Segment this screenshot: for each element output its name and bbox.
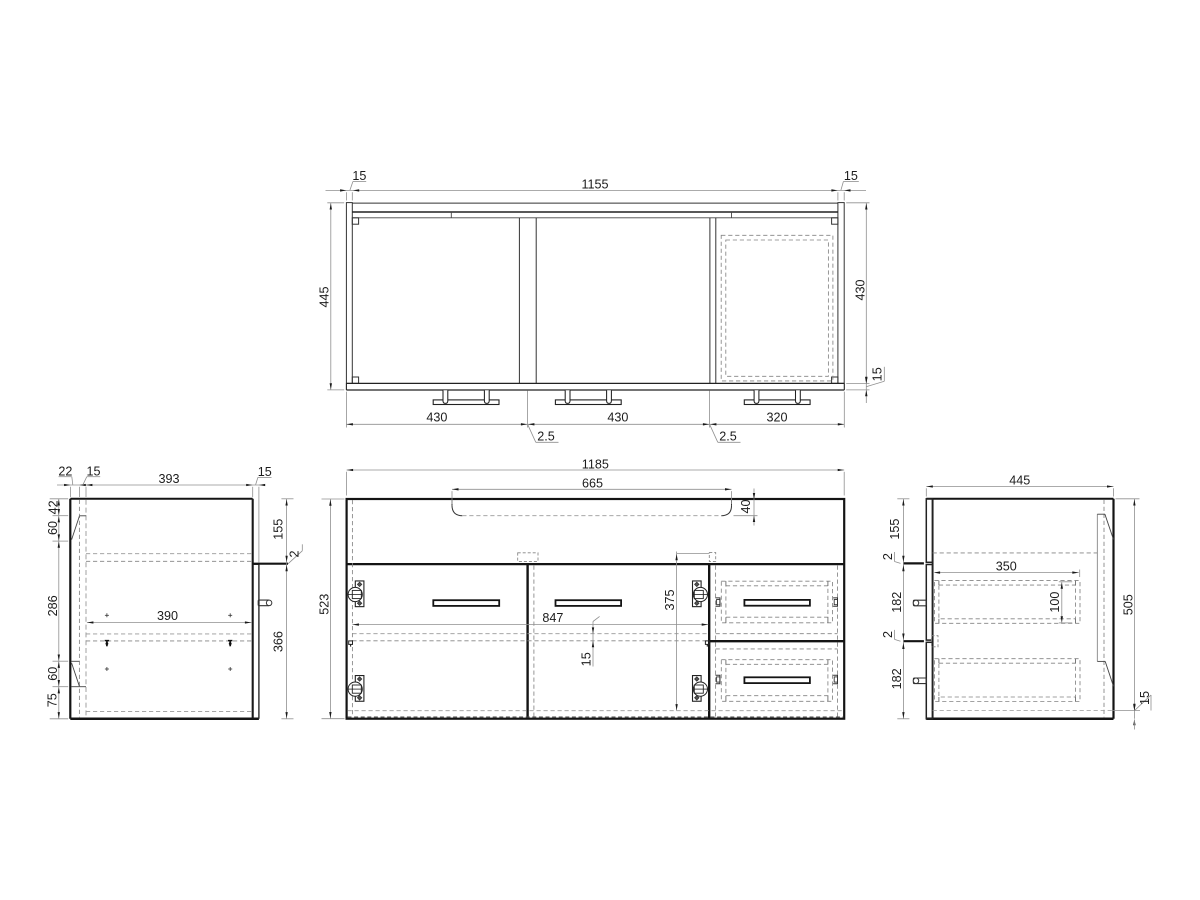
svg-text:523: 523 [318, 594, 332, 615]
svg-text:2.5: 2.5 [719, 429, 737, 443]
svg-text:445: 445 [318, 286, 332, 307]
svg-text:75: 75 [45, 693, 59, 707]
svg-text:40: 40 [739, 499, 753, 513]
svg-text:430: 430 [607, 411, 628, 425]
svg-text:286: 286 [46, 595, 60, 616]
svg-text:1185: 1185 [582, 457, 609, 471]
svg-text:665: 665 [582, 477, 603, 491]
svg-text:320: 320 [766, 411, 787, 425]
svg-text:430: 430 [426, 411, 447, 425]
svg-text:505: 505 [1122, 594, 1136, 615]
svg-text:100: 100 [1048, 592, 1062, 613]
svg-text:15: 15 [258, 465, 272, 479]
svg-text:1155: 1155 [581, 178, 608, 192]
svg-text:60: 60 [46, 521, 60, 535]
svg-text:375: 375 [663, 589, 677, 610]
svg-text:15: 15 [844, 169, 858, 183]
svg-text:60: 60 [46, 667, 60, 681]
svg-text:2: 2 [287, 550, 301, 557]
svg-text:15: 15 [871, 367, 885, 381]
svg-text:155: 155 [888, 519, 902, 540]
svg-text:15: 15 [580, 652, 594, 666]
svg-text:350: 350 [996, 559, 1017, 573]
svg-text:42: 42 [47, 500, 61, 514]
svg-text:2: 2 [881, 553, 895, 560]
svg-text:390: 390 [157, 609, 178, 623]
svg-text:15: 15 [1138, 691, 1152, 705]
svg-text:430: 430 [853, 279, 867, 300]
svg-text:155: 155 [271, 519, 285, 540]
svg-text:182: 182 [890, 592, 904, 613]
svg-text:15: 15 [86, 464, 100, 478]
svg-text:182: 182 [890, 668, 904, 689]
svg-text:393: 393 [158, 472, 179, 486]
svg-text:15: 15 [352, 169, 366, 183]
svg-text:2: 2 [881, 631, 895, 638]
svg-text:847: 847 [542, 611, 563, 625]
svg-text:22: 22 [58, 464, 72, 478]
svg-text:2.5: 2.5 [537, 429, 555, 443]
svg-text:445: 445 [1009, 473, 1030, 487]
svg-text:366: 366 [271, 631, 285, 652]
